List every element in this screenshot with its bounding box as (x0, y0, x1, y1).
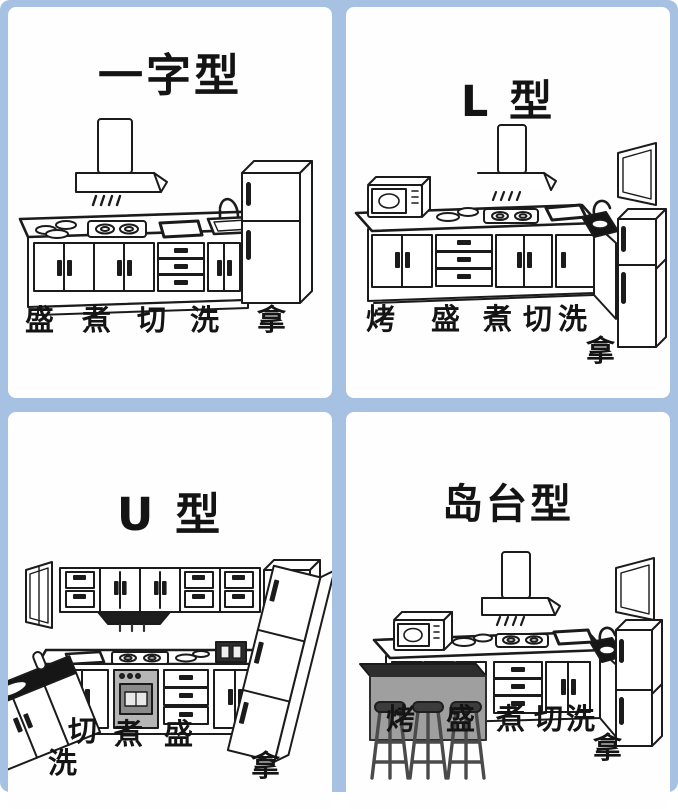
countertop (20, 199, 276, 238)
panel-island-kitchen: 岛台型 (346, 412, 670, 809)
step-label-cut: 切 (523, 305, 552, 334)
step-label-take: 拿 (586, 337, 615, 366)
step-label-serve: 盛 (164, 720, 193, 749)
step-label-serve: 盛 (25, 306, 54, 335)
step-label-take: 拿 (593, 734, 622, 763)
panel-l-type-kitchen: L 型 (346, 7, 670, 398)
step-label-bake: 烤 (366, 305, 395, 334)
step-label-cut: 切 (534, 705, 563, 734)
step-label-cut: 切 (68, 717, 97, 746)
wall-cabinets (60, 568, 260, 631)
panel-u-type-kitchen: U 型 (8, 412, 332, 809)
window-icon (618, 143, 656, 205)
fridge-icon (242, 161, 312, 303)
window-icon (26, 562, 52, 628)
microwave-icon (394, 612, 452, 650)
step-label-serve: 盛 (446, 705, 475, 734)
linear-kitchen-illustration (8, 7, 332, 398)
step-label-wash: 洗 (190, 306, 219, 335)
step-label-cook: 煮 (114, 720, 143, 749)
cutting-board-icon (160, 221, 202, 237)
step-label-cut: 切 (137, 306, 166, 335)
step-label-serve: 盛 (431, 305, 460, 334)
fridge-icon (616, 620, 662, 746)
cutting-board-icon (554, 630, 593, 644)
step-label-cook: 煮 (496, 705, 525, 734)
range-hood-icon (478, 125, 556, 200)
step-label-take: 拿 (257, 306, 286, 335)
range-hood-icon (76, 119, 167, 205)
fridge-icon (618, 209, 666, 347)
kitchen-layouts-infographic: 一字型 (0, 0, 678, 809)
step-label-cook: 煮 (82, 306, 111, 335)
step-label-bake: 烤 (386, 705, 415, 734)
microwave-icon (368, 177, 430, 217)
window-icon (616, 558, 654, 620)
corner-cabinet (594, 223, 616, 319)
step-label-wash: 洗 (558, 305, 587, 334)
l-type-kitchen-illustration (346, 7, 670, 398)
step-label-wash: 洗 (48, 749, 77, 778)
range-hood-icon (482, 552, 560, 625)
step-label-take: 拿 (251, 752, 280, 781)
step-label-cook: 煮 (483, 305, 512, 334)
built-in-hood-icon (98, 612, 170, 624)
step-label-wash: 洗 (566, 705, 595, 734)
panel-linear-kitchen: 一字型 (8, 7, 332, 398)
cutting-board-icon (546, 205, 586, 220)
